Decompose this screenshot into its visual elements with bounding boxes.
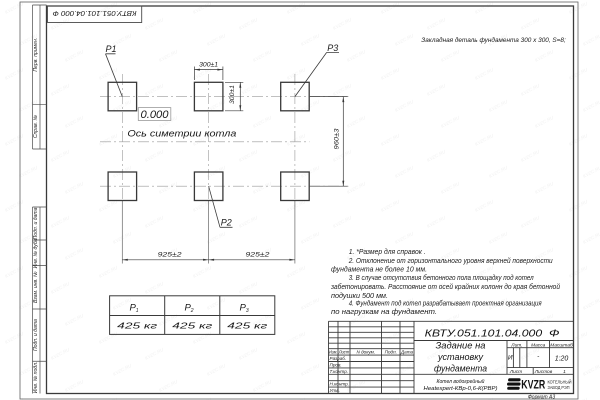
svg-text:Р3: Р3	[327, 43, 338, 53]
svg-text:925±2: 925±2	[158, 252, 183, 259]
svg-text:Утв.: Утв.	[330, 388, 340, 393]
svg-text:Листов: Листов	[534, 369, 553, 375]
svg-text:установку: установку	[437, 352, 484, 362]
svg-text:Ось симетрии котла: Ось симетрии котла	[127, 129, 236, 139]
svg-text:KVZR: KVZR	[521, 380, 546, 392]
svg-text:0.000: 0.000	[141, 109, 170, 121]
svg-text:2. Отклонение от горизонтально: 2. Отклонение от горизонтального уровня …	[348, 257, 553, 265]
svg-text:Взам. инв. №: Взам. инв. №	[33, 271, 39, 303]
svg-text:Heatexpert-КВр-0,6-К(РВР): Heatexpert-КВр-0,6-К(РВР)	[424, 386, 498, 392]
svg-text:Подп. и дата: Подп. и дата	[33, 207, 39, 239]
svg-text:Пров.: Пров.	[330, 362, 342, 367]
svg-text:300±1: 300±1	[229, 85, 236, 104]
svg-text:фундамента: фундамента	[434, 364, 487, 374]
svg-text:960±3: 960±3	[334, 128, 341, 150]
svg-text:Р2: Р2	[221, 218, 232, 228]
svg-text:Масса: Масса	[531, 342, 546, 348]
svg-text:фундамента не более 10 мм.: фундамента не более 10 мм.	[331, 266, 427, 274]
svg-text:4. Фундамент под котел разраба: 4. Фундамент под котел разрабатывает про…	[349, 300, 542, 308]
svg-text:425 кг: 425 кг	[117, 321, 157, 331]
svg-text:Лит.: Лит.	[510, 342, 522, 348]
svg-text:N докум.: N докум.	[357, 350, 376, 355]
svg-text:Задание на: Задание на	[436, 341, 486, 351]
svg-text:Формат А3: Формат А3	[528, 394, 556, 400]
svg-text:Перв. примен.: Перв. примен.	[33, 38, 39, 72]
svg-text:подушки 500 мм.: подушки 500 мм.	[331, 292, 388, 300]
svg-text:3. В случае отсутствия бетонно: 3. В случае отсутствия бетонного пола пл…	[349, 274, 534, 282]
svg-text:Инв. № дубл.: Инв. № дубл.	[33, 237, 39, 268]
svg-text:КОТЕЛЬНЫЙ: КОТЕЛЬНЫЙ	[548, 379, 572, 384]
svg-text:КВТУ.051.101.04.000 Ф: КВТУ.051.101.04.000 Ф	[53, 9, 137, 18]
svg-text:КВТУ.051.101.04.000: КВТУ.051.101.04.000	[425, 327, 543, 339]
svg-text:300±1: 300±1	[199, 62, 218, 69]
svg-text:Инв. № подл.: Инв. № подл.	[33, 362, 39, 394]
svg-text:И: И	[508, 355, 513, 362]
svg-text:Подп. и дата: Подп. и дата	[33, 319, 39, 351]
svg-text:Дата: Дата	[400, 350, 414, 355]
svg-text:425 кг: 425 кг	[172, 321, 212, 331]
svg-text:Р1: Р1	[106, 44, 117, 54]
svg-text:по нагрузкам на фундамент.: по нагрузкам на фундамент.	[331, 308, 437, 316]
svg-text:Разраб.: Разраб.	[330, 356, 347, 361]
svg-text:Котел водогрейный: Котел водогрейный	[437, 378, 485, 385]
svg-text:1:20: 1:20	[555, 356, 569, 363]
svg-text:Лист: Лист	[509, 369, 522, 375]
svg-text:Н.контр.: Н.контр.	[330, 382, 349, 387]
svg-text:Закладная деталь фундамента 3: Закладная деталь фундамента 300 х 300, S…	[421, 36, 566, 44]
svg-text:Изм.: Изм.	[329, 350, 338, 355]
svg-text:Т.контр.: Т.контр.	[330, 369, 349, 374]
svg-text:1. *Размер для справок .: 1. *Размер для справок .	[349, 248, 426, 256]
svg-text:925±2: 925±2	[246, 252, 271, 259]
svg-text:забетонировать. Расстояние от: забетонировать. Расстояние от осей крайн…	[330, 283, 560, 291]
svg-text:Лист: Лист	[338, 350, 350, 355]
svg-text:Подп.: Подп.	[385, 350, 397, 355]
svg-text:Масштаб: Масштаб	[550, 342, 573, 348]
svg-text:425 кг: 425 кг	[227, 321, 267, 331]
svg-text:ЗАВОД РЭП: ЗАВОД РЭП	[548, 385, 570, 390]
svg-text:Ф: Ф	[549, 327, 560, 339]
svg-text:1: 1	[563, 369, 566, 375]
svg-text:Справ. №: Справ. №	[33, 115, 39, 139]
